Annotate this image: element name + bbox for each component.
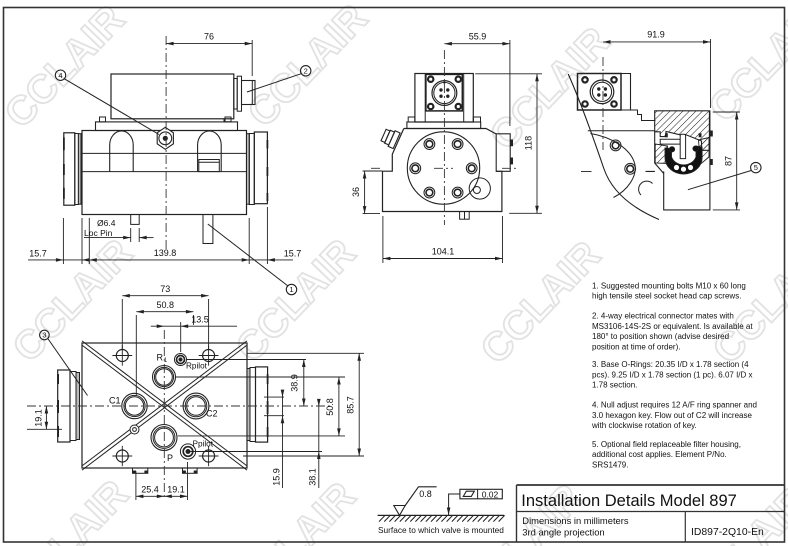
svg-text:15.7: 15.7 [284, 249, 302, 259]
svg-text:Rpilot: Rpilot [186, 361, 208, 370]
svg-text:with clockwise rotation of key: with clockwise rotation of key. [591, 421, 697, 430]
svg-text:SRS1479.: SRS1479. [592, 460, 628, 469]
svg-text:C2: C2 [206, 409, 218, 419]
svg-text:position at time of order).: position at time of order). [592, 343, 680, 352]
svg-text:50.8: 50.8 [325, 398, 335, 416]
svg-text:104.1: 104.1 [432, 247, 455, 257]
svg-text:36: 36 [351, 187, 361, 197]
svg-text:Dimensions in millimeters: Dimensions in millimeters [522, 515, 629, 526]
svg-text:1.78 section.: 1.78 section. [592, 381, 637, 390]
svg-text:Ø6.4: Ø6.4 [97, 218, 116, 228]
svg-text:139.8: 139.8 [154, 248, 177, 258]
svg-text:high tensile steel socket head: high tensile steel socket head cap screw… [592, 292, 741, 301]
svg-text:Ppilot: Ppilot [193, 439, 214, 448]
svg-text:0.02: 0.02 [482, 489, 499, 499]
svg-text:3.0 hexagon key. Flow out of C: 3.0 hexagon key. Flow out of C2 will inc… [592, 411, 752, 420]
svg-text:85.7: 85.7 [346, 396, 356, 414]
svg-text:3: 3 [42, 331, 46, 340]
svg-text:0.8: 0.8 [419, 489, 432, 499]
svg-text:1. Suggested mounting bolts M1: 1. Suggested mounting bolts M10 x 60 lon… [592, 281, 746, 290]
svg-text:2. 4-way electrical connector: 2. 4-way electrical connector mates with [592, 312, 734, 321]
svg-text:50.8: 50.8 [157, 300, 175, 310]
svg-text:3rd angle projection: 3rd angle projection [522, 527, 604, 538]
svg-text:ID897-2Q10-En: ID897-2Q10-En [691, 527, 764, 538]
svg-text:91.9: 91.9 [647, 30, 665, 40]
svg-text:4. Null adjust requires 12 A/F: 4. Null adjust requires 12 A/F ring span… [592, 401, 757, 410]
svg-text:R: R [157, 353, 164, 363]
svg-text:1: 1 [289, 285, 293, 294]
svg-text:25.4: 25.4 [141, 485, 159, 495]
svg-text:19.1: 19.1 [167, 485, 185, 495]
svg-text:5: 5 [754, 163, 758, 172]
svg-text:C1: C1 [109, 396, 121, 406]
svg-text:MS3106-14S-2S or equivalent. I: MS3106-14S-2S or equivalent. Is availabl… [592, 322, 753, 331]
svg-text:additional cost applies. Eleme: additional cost applies. Element P/No. [592, 450, 727, 459]
svg-text:118: 118 [524, 136, 534, 150]
svg-text:87: 87 [724, 156, 734, 166]
svg-text:Surface to which valve is moun: Surface to which valve is mounted [378, 525, 504, 535]
svg-text:15.7: 15.7 [29, 249, 47, 259]
svg-text:3. Base O-Rings: 20.35 I/D x 1: 3. Base O-Rings: 20.35 I/D x 1.78 sectio… [592, 360, 749, 369]
svg-text:P: P [167, 453, 173, 463]
svg-text:13.5: 13.5 [191, 315, 209, 325]
svg-text:Loc Pin: Loc Pin [84, 228, 113, 238]
svg-text:55.9: 55.9 [469, 32, 487, 42]
svg-text:76: 76 [204, 32, 214, 42]
svg-text:pcs). 9.25 I/D x 1.78 section: pcs). 9.25 I/D x 1.78 section (1 pc). 6.… [592, 370, 753, 379]
svg-text:2: 2 [304, 66, 308, 75]
svg-text:15.9: 15.9 [272, 468, 282, 486]
svg-text:180° to position shown (advise: 180° to position shown (advise desired [592, 332, 729, 341]
svg-text:38.1: 38.1 [308, 468, 318, 486]
svg-text:5. Optional field replaceable: 5. Optional field replaceable filter hou… [592, 440, 741, 449]
svg-text:4: 4 [58, 71, 62, 80]
svg-text:Installation Details Model 897: Installation Details Model 897 [521, 492, 737, 510]
svg-text:73: 73 [160, 284, 170, 294]
svg-text:19.1: 19.1 [34, 409, 44, 427]
